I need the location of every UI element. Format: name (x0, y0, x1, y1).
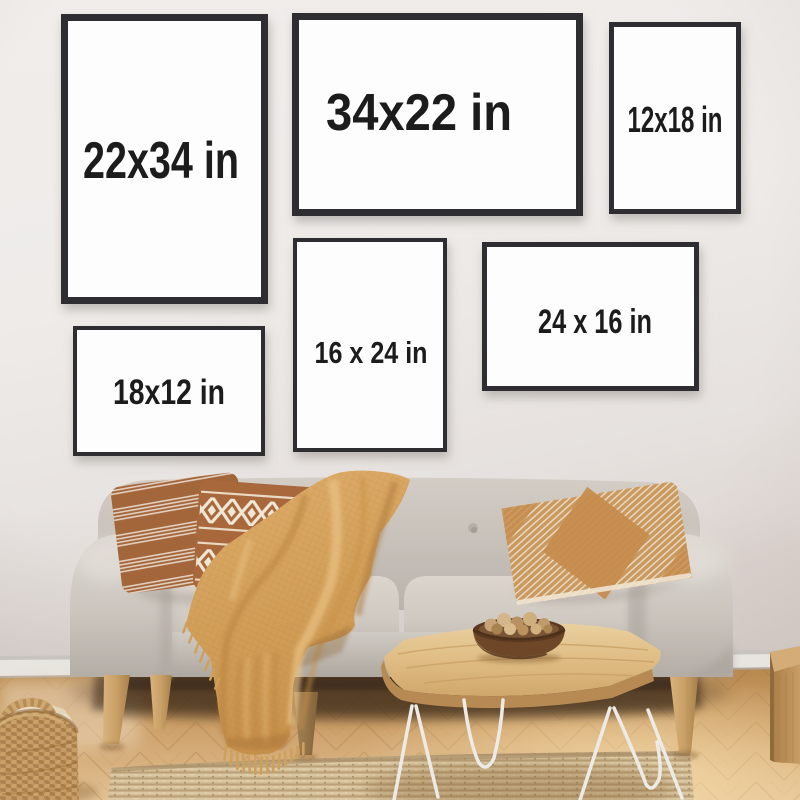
svg-text:24 x 16 in: 24 x 16 in (538, 303, 652, 341)
svg-text:34x22 in: 34x22 in (326, 84, 512, 142)
svg-text:12x18 in: 12x18 in (628, 99, 723, 140)
svg-text:16 x 24 in: 16 x 24 in (315, 335, 428, 370)
svg-text:18x12 in: 18x12 in (113, 373, 225, 412)
svg-text:22x34 in: 22x34 in (83, 132, 239, 190)
